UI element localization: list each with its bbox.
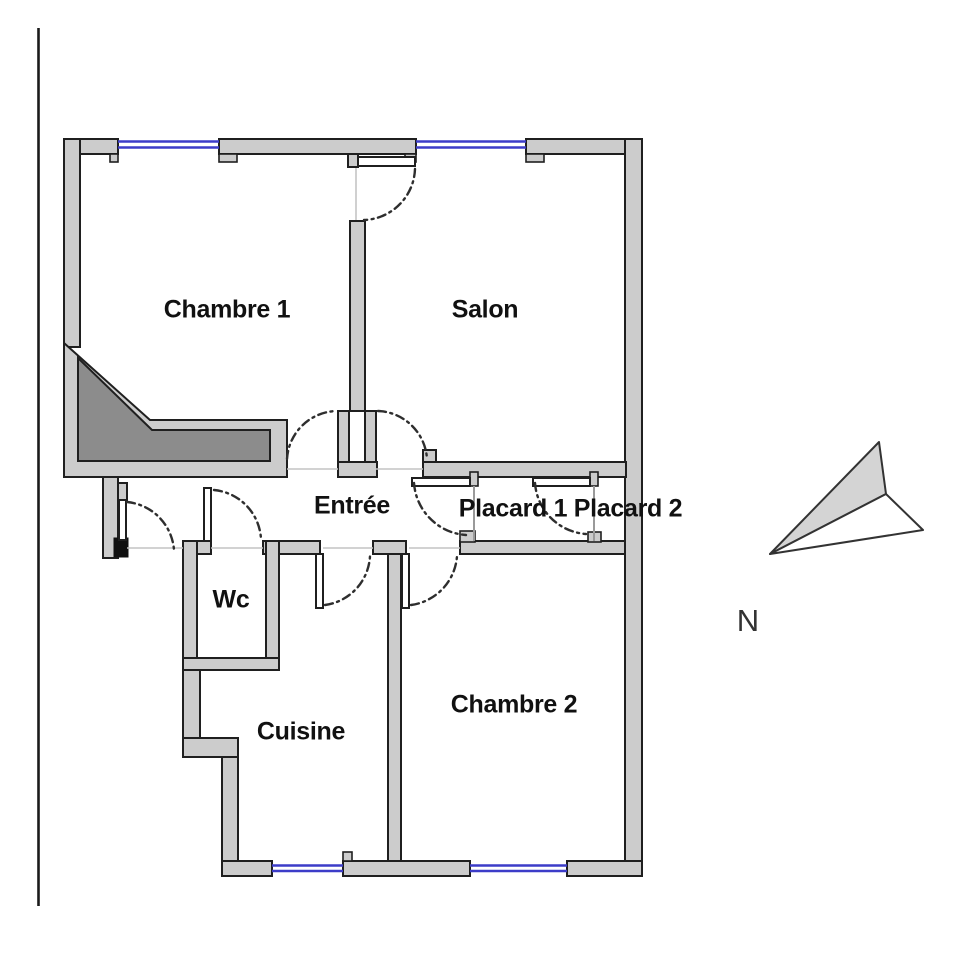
room-label-cuisine: Cuisine [257, 718, 346, 746]
room-label-chambre2: Chambre 2 [451, 691, 578, 719]
window-cuisine [272, 866, 343, 872]
window-chambre1 [118, 142, 219, 148]
dark-wall-recess [78, 358, 270, 461]
room-label-salon: Salon [452, 296, 519, 324]
floor-plan-svg: Chambre 1 Salon Entrée Placard 1 Placard… [0, 0, 956, 974]
door-leaf-chambre2 [402, 554, 409, 608]
door-leaf-entrance [119, 500, 126, 540]
door-leaf-salon-chambre1 [358, 157, 415, 166]
room-label-placard2: Placard 2 [574, 495, 682, 523]
north-label: N [737, 603, 759, 638]
room-label-entree: Entrée [314, 492, 390, 520]
north-arrow-icon [770, 442, 923, 554]
door-leaf-cuisine [316, 554, 323, 608]
window-chambre2 [470, 866, 567, 872]
door-leaf-wc [204, 488, 211, 541]
room-labels: Chambre 1 Salon Entrée Placard 1 Placard… [164, 296, 759, 746]
door-leaf-placard1 [412, 478, 470, 486]
room-label-placard1: Placard 1 [459, 495, 568, 523]
door-leaf-placard2 [533, 478, 590, 486]
floor-plan-page: Chambre 1 Salon Entrée Placard 1 Placard… [0, 0, 956, 974]
room-label-wc: Wc [213, 586, 250, 614]
room-label-chambre1: Chambre 1 [164, 296, 291, 324]
window-salon [416, 142, 526, 148]
